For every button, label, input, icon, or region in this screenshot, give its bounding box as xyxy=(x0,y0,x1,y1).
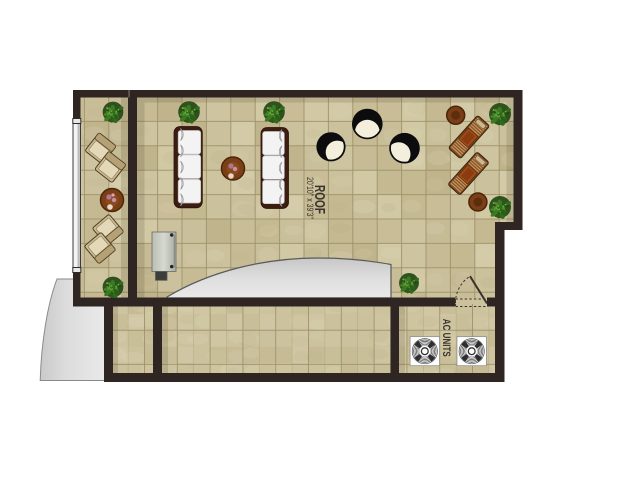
svg-text:20'10" x 39'3": 20'10" x 39'3" xyxy=(304,177,315,219)
svg-text:AC UNITS: AC UNITS xyxy=(440,319,452,357)
